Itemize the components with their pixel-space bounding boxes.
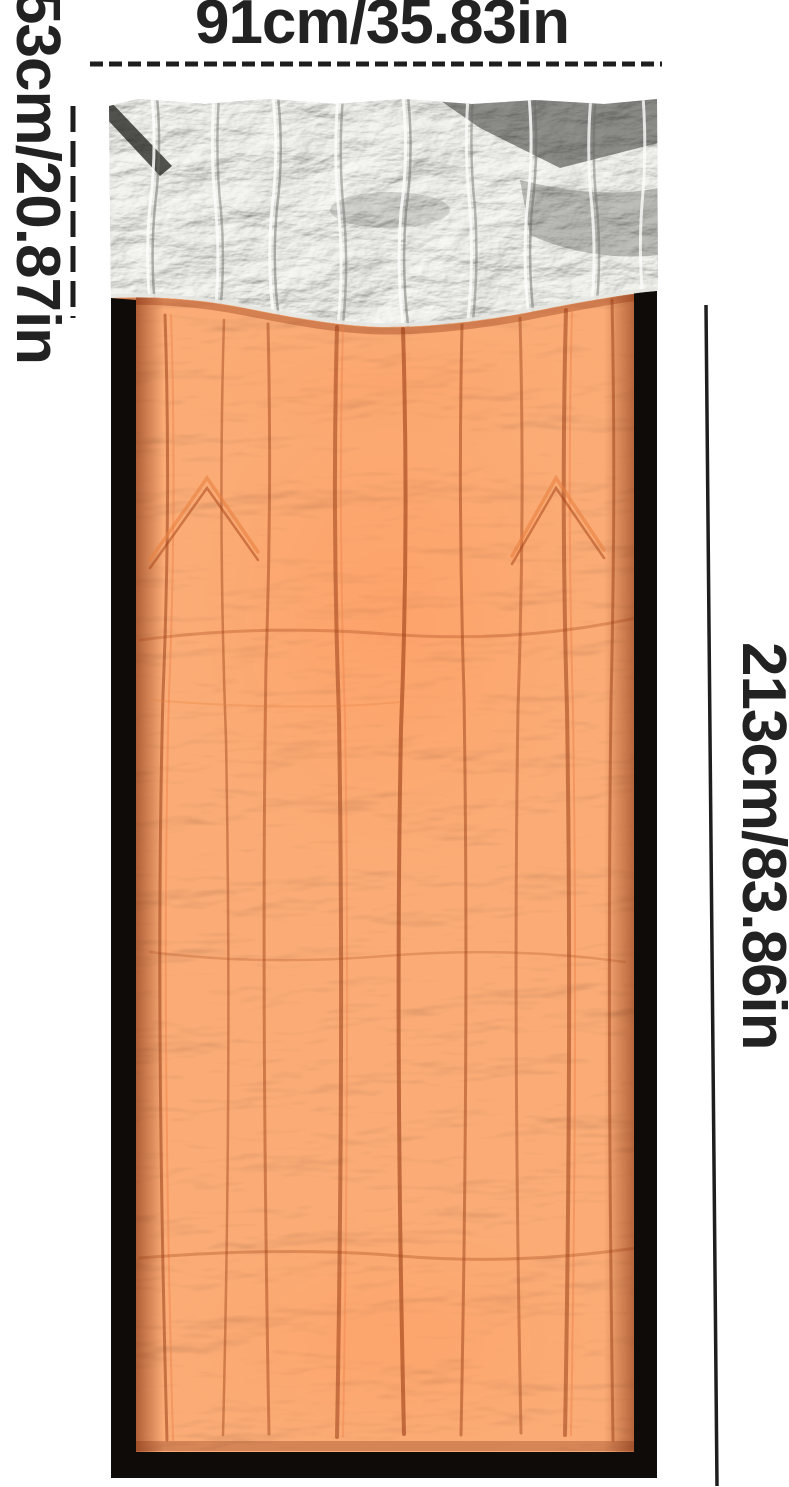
bottom-edge bbox=[111, 1452, 657, 1478]
orange-body-section bbox=[111, 290, 657, 1478]
product-image: 91cm/35.83in 53cm/20.87in 213cm/83.86in bbox=[0, 0, 789, 1487]
length-dimension-line bbox=[706, 305, 717, 1486]
left-edge bbox=[111, 298, 136, 1478]
sleeping-bag-illustration bbox=[0, 0, 789, 1487]
right-edge bbox=[634, 291, 657, 1478]
